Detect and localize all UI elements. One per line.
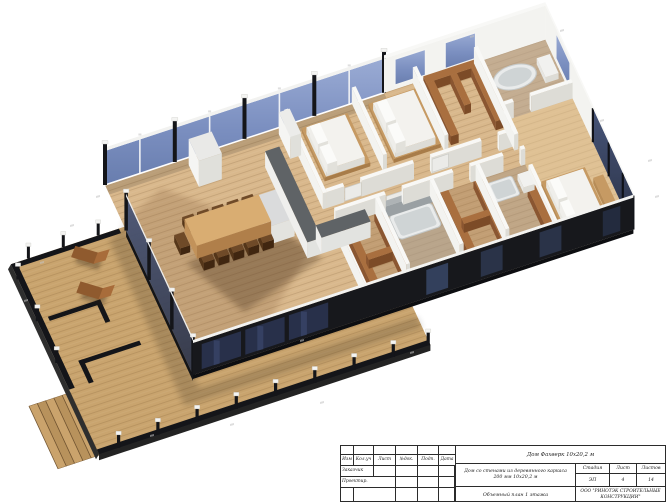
sheets-value: 14 [637,474,665,486]
object-description-line2: 200 мм 10х20,2 м [493,475,537,481]
stage-value: ЭП [576,474,610,486]
tb-col-list: Лист [374,455,396,466]
tb-cell [374,477,396,488]
floorplan-3d-render [0,0,667,502]
sheet-label: Лист [610,464,637,474]
tb-cell [418,488,439,501]
tb-cell [439,488,455,501]
tb-cell [418,477,439,488]
tb-cell [396,466,418,477]
tb-col-podp: Подп. [418,455,439,466]
tb-col-dok: №док. [396,455,418,466]
title-block: Изм Кол.уч Лист №док. Подп. Дата Заказчи… [340,445,666,502]
tb-col-izm: Изм [341,455,354,466]
tb-cell [354,488,374,501]
tb-cell [341,488,354,501]
tb-col-data: Дата [439,455,455,466]
title-block-main: Дом Фахверк 10х20,2 м Дом со стенами из … [455,446,665,501]
company-line2: КОНСТРУКЦИИ" [600,495,640,501]
drawing-sheet: Изм Кол.уч Лист №док. Подп. Дата Заказчи… [0,0,667,502]
tb-cell [418,446,439,455]
tb-cell [374,488,396,501]
tb-cell [418,466,439,477]
company-name: ООО "РИНОТЭК СТРОИТЕЛЬНЫЕ КОНСТРУКЦИИ" [576,487,665,502]
sheet-value: 4 [610,474,637,486]
sheet-name: Объемный план 1 этажа [456,487,576,502]
object-description: Дом со стенами из деревянного каркаса 20… [456,464,576,486]
stage-table: Стадия Лист Листов ЭП 4 14 [576,464,665,486]
tb-cell [374,466,396,477]
tb-cell [439,466,455,477]
tb-cell [354,446,374,455]
tb-col-koluch: Кол.уч [354,455,374,466]
tb-cell [396,488,418,501]
tb-row-customer: Заказчик [341,466,374,477]
tb-cell [396,477,418,488]
title-block-revision-table: Изм Кол.уч Лист №док. Подп. Дата Заказчи… [341,446,455,501]
tb-cell [374,446,396,455]
tb-cell [396,446,418,455]
sheets-label: Листов [637,464,665,474]
stage-label: Стадия [576,464,610,474]
tb-cell [341,446,354,455]
project-title: Дом Фахверк 10х20,2 м [456,446,665,464]
tb-cell [439,446,455,455]
tb-cell [439,477,455,488]
tb-row-designer: Проектир. [341,477,374,488]
